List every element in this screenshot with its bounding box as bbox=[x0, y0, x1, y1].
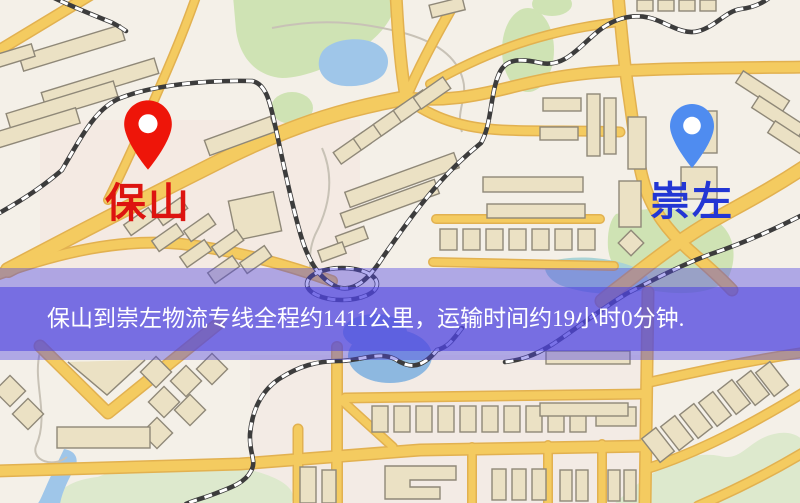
destination-label: 崇左 bbox=[650, 182, 734, 222]
route-info-banner: 保山到崇左物流专线全程约1411公里，运输时间约19小时0分钟. bbox=[0, 268, 800, 360]
map-canvas[interactable] bbox=[0, 0, 800, 503]
destination-marker[interactable]: 崇左 bbox=[650, 104, 734, 222]
destination-pin-icon bbox=[668, 104, 716, 168]
route-info-text: 保山到崇左物流专线全程约1411公里，运输时间约19小时0分钟. bbox=[0, 287, 800, 351]
origin-label: 保山 bbox=[105, 183, 191, 224]
origin-marker[interactable]: 保山 bbox=[105, 100, 191, 224]
map-view: 保山 崇左 保山到崇左物流专线全程约1411公里，运输时间约19小时0分钟. bbox=[0, 0, 800, 503]
origin-pin-icon bbox=[122, 100, 174, 170]
